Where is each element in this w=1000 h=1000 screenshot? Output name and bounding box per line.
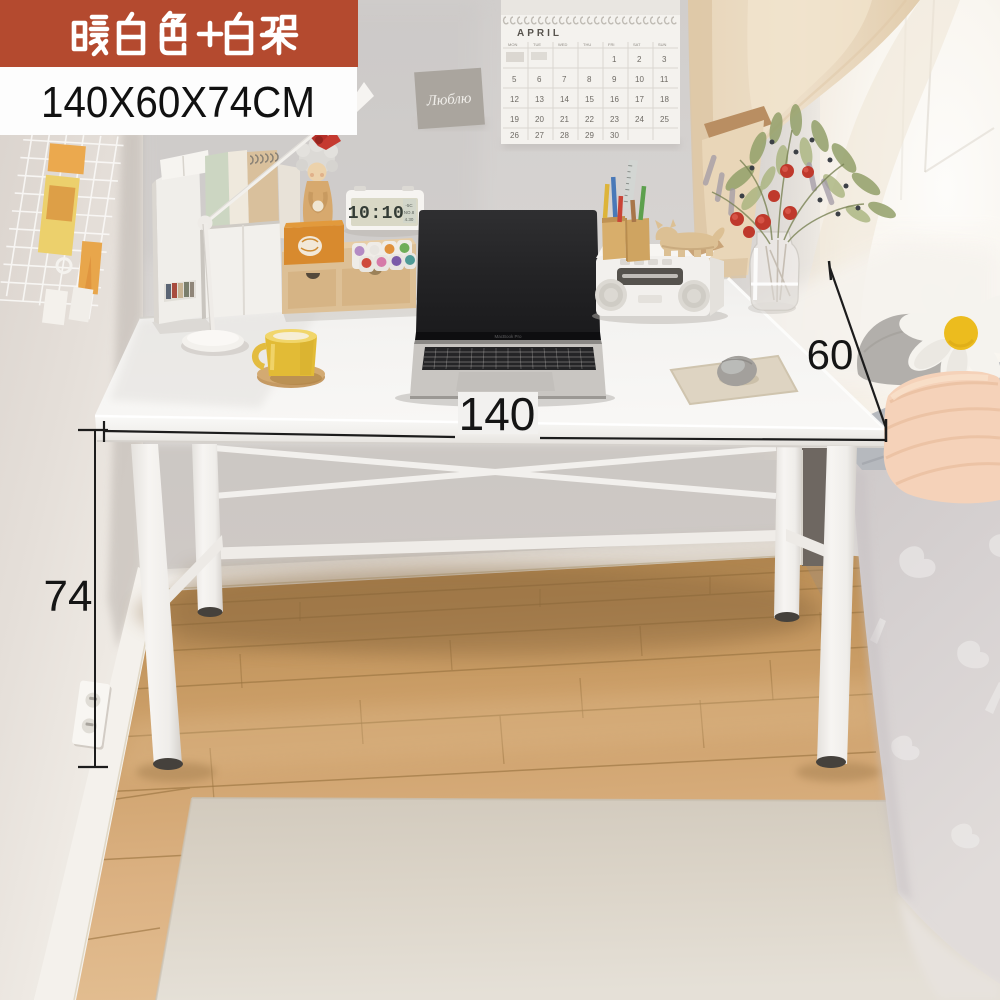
svg-text:26: 26 [510,131,519,140]
svg-text:THU: THU [583,42,591,47]
svg-text:29: 29 [585,131,594,140]
svg-text:11: 11 [660,75,669,84]
svg-text:TUE: TUE [533,42,541,47]
svg-text:Люблю: Люблю [425,90,472,109]
svg-text:12: 12 [510,95,519,104]
svg-text:18: 18 [660,95,669,104]
svg-text:SUN: SUN [658,42,667,47]
svg-text:30: 30 [610,131,619,140]
svg-text:-5C: -5C [405,203,413,208]
svg-text:1: 1 [612,55,617,64]
svg-text:SAT: SAT [633,42,641,47]
svg-text:22: 22 [585,115,594,124]
svg-text:21: 21 [560,115,569,124]
svg-text:20: 20 [535,115,544,124]
svg-text:MON: MON [508,42,517,47]
svg-text:NO.8: NO.8 [404,210,415,215]
svg-text:4.30: 4.30 [405,217,414,222]
svg-text:24: 24 [635,115,644,124]
svg-text:3: 3 [662,55,667,64]
svg-text:9: 9 [612,75,617,84]
svg-text:16: 16 [610,95,619,104]
svg-text:74: 74 [44,572,93,621]
svg-text:25: 25 [660,115,669,124]
svg-text:WED: WED [558,42,567,47]
svg-text:MacBook Pro: MacBook Pro [494,334,522,339]
svg-text:7: 7 [562,75,567,84]
svg-text:10: 10 [635,75,644,84]
svg-text:28: 28 [560,131,569,140]
svg-text:17: 17 [635,95,644,104]
svg-text:60: 60 [807,331,854,378]
svg-text:140X60X74CM: 140X60X74CM [41,78,315,127]
svg-text:APRIL: APRIL [517,28,562,39]
svg-text:14: 14 [560,95,569,104]
svg-text:13: 13 [535,95,544,104]
svg-text:2: 2 [637,55,642,64]
svg-text:6: 6 [537,75,542,84]
svg-text:8: 8 [587,75,592,84]
svg-text:FRI: FRI [608,42,614,47]
svg-text:10:10: 10:10 [348,204,405,224]
svg-text:19: 19 [510,115,519,124]
svg-text:5: 5 [512,75,517,84]
svg-text:140: 140 [459,388,536,440]
svg-text:15: 15 [585,95,594,104]
svg-text:27: 27 [535,131,544,140]
svg-text:23: 23 [610,115,619,124]
